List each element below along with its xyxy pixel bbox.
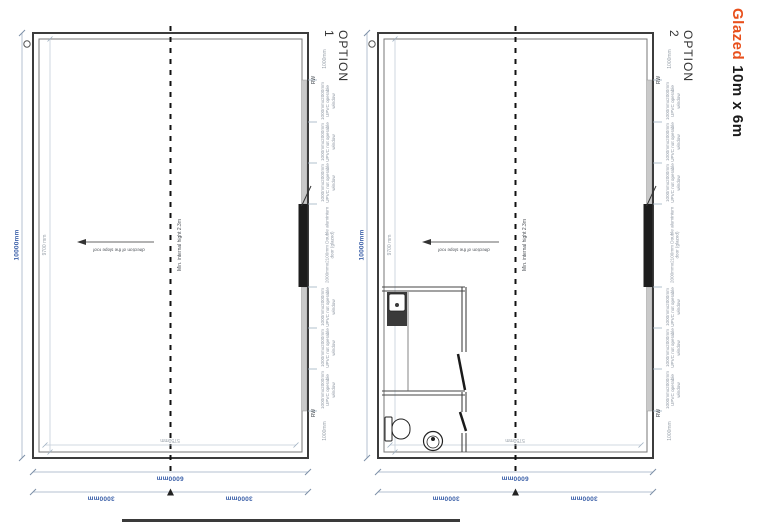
window-glazing-band-top [302,80,307,204]
option-2-title: OPTION 2 [667,30,695,82]
entrance-door [299,204,308,287]
rainwater-label-top: RW [311,76,317,84]
window-label-1: 1000mmx2000mm UPVC operable window [665,78,681,124]
min-height-note: Min. internal hight 2.3m [522,219,528,271]
plan-linework [14,20,364,522]
window-label-2: 1000mmx2000mm UPVC not operable window [665,119,681,165]
slope-direction-note: direction of the slope roof [438,248,490,253]
edge-seg-dim-bottom: 1000mm [667,421,673,440]
window-glazing-band-bottom [302,287,307,411]
sheet-title-accent: Glazed [729,8,746,60]
window-label-1: 1000mmx2000mm UPVC operable window [320,78,336,124]
dim-overall-height: 10000mm [14,229,21,260]
toilet [385,417,410,441]
option-1-title: OPTION 1 [322,30,350,82]
window-label-3: 1000mmx2000mm UPVC not operable window [320,160,336,206]
door-label: 2000mmx2100mm Double aluminium door (gla… [325,203,336,287]
sheet-title-size: 10m x 6m [729,65,746,137]
dim-half-width-1: 3000mm [432,495,459,502]
floor-plan-option-2: 10000mm 9700 mm Min. internal hight 2.3m… [359,20,709,522]
utility-sink [389,294,405,311]
rainwater-label-bottom: RW [311,409,317,417]
drainage-marker-icon [369,41,375,47]
dim-half-width-2: 3000mm [225,495,252,502]
window-glazing-band-bottom [647,287,652,411]
dim-half-width-1: 3000mm [87,495,114,502]
dim-internal-height: 9700 mm [387,235,393,256]
window-label-4: 1000mmx2000mm UPVC not operable window [665,284,681,330]
floor-plan-option-1: 10000mm 9700 mm Min. internal hight 2.3m… [14,20,364,522]
window-label-4: 1000mmx2000mm UPVC not operable window [320,284,336,330]
window-glazing-band-top [647,80,652,204]
wash-basin [424,432,443,451]
window-label-6: 1000mmx2000mm UPVC operable window [665,367,681,413]
edge-seg-dim-bottom: 1000mm [322,421,328,440]
min-height-note: Min. internal hight 2.3m [177,219,183,271]
entrance-door [644,204,653,287]
rainwater-label-bottom: RW [656,409,662,417]
dim-overall-width: 6000mm [501,475,528,482]
rainwater-label-top: RW [656,76,662,84]
dim-internal-height: 9700 mm [42,235,48,256]
window-label-2: 1000mmx2000mm UPVC not operable window [320,119,336,165]
dim-internal-width: 5750mm [505,437,524,443]
sheet-title: Glazed10m x 6m [729,8,746,138]
dim-overall-width: 6000mm [156,475,183,482]
dim-internal-width: 5750mm [160,437,179,443]
plan-linework [359,20,709,522]
door-label: 2000mmx2100mm Double aluminium door (gla… [670,203,681,287]
window-label-5: 1000mmx2000mm UPVC not operable window [665,325,681,371]
slope-direction-note: direction of the slope roof [93,248,145,253]
window-label-6: 1000mmx2000mm UPVC operable window [320,367,336,413]
dim-overall-height: 10000mm [359,229,366,260]
window-label-5: 1000mmx2000mm UPVC not operable window [320,325,336,371]
dim-half-width-2: 3000mm [570,495,597,502]
drainage-marker-icon [24,41,30,47]
window-label-3: 1000mmx2000mm UPVC not operable window [665,160,681,206]
